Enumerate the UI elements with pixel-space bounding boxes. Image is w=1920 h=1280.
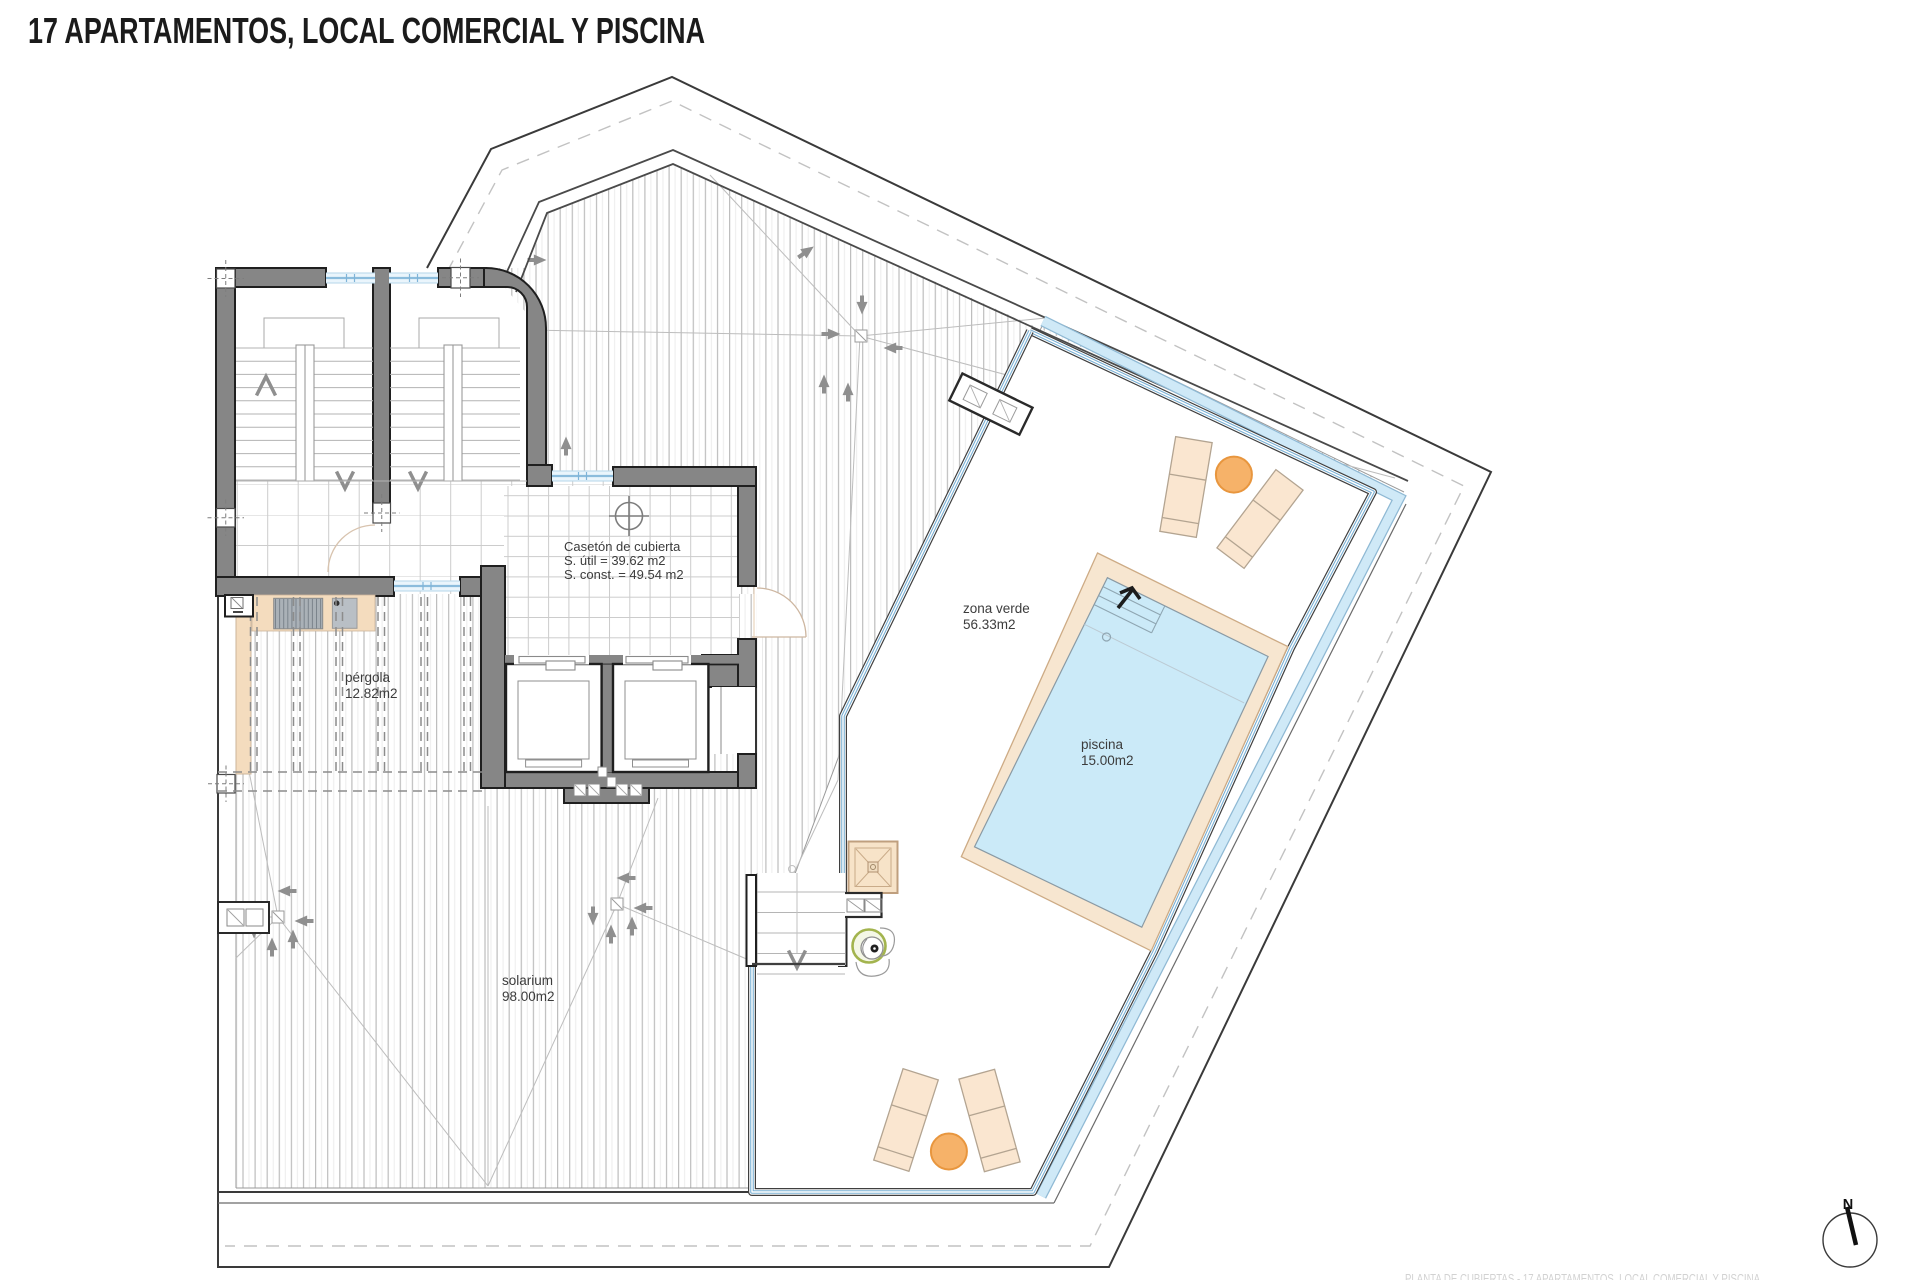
svg-text:12.82m2: 12.82m2 [345, 686, 398, 701]
svg-text:98.00m2: 98.00m2 [502, 989, 555, 1004]
svg-text:15.00m2: 15.00m2 [1081, 753, 1134, 768]
svg-text:56.33m2: 56.33m2 [963, 617, 1016, 632]
svg-text:S. útil = 39.62 m2: S. útil = 39.62 m2 [564, 553, 666, 568]
svg-text:PLANTA DE CUBIERTAS - 17 APART: PLANTA DE CUBIERTAS - 17 APARTAMENTOS, L… [1405, 1272, 1761, 1280]
svg-text:17 APARTAMENTOS, LOCAL COMERCI: 17 APARTAMENTOS, LOCAL COMERCIAL Y PISCI… [28, 10, 705, 51]
svg-text:piscina: piscina [1081, 737, 1124, 752]
svg-text:pérgola: pérgola [345, 670, 391, 685]
svg-text:Casetón de cubierta: Casetón de cubierta [564, 539, 681, 554]
svg-text:S. const. = 49.54 m2: S. const. = 49.54 m2 [564, 567, 684, 582]
svg-text:solarium: solarium [502, 973, 553, 988]
svg-text:zona verde: zona verde [963, 601, 1030, 616]
